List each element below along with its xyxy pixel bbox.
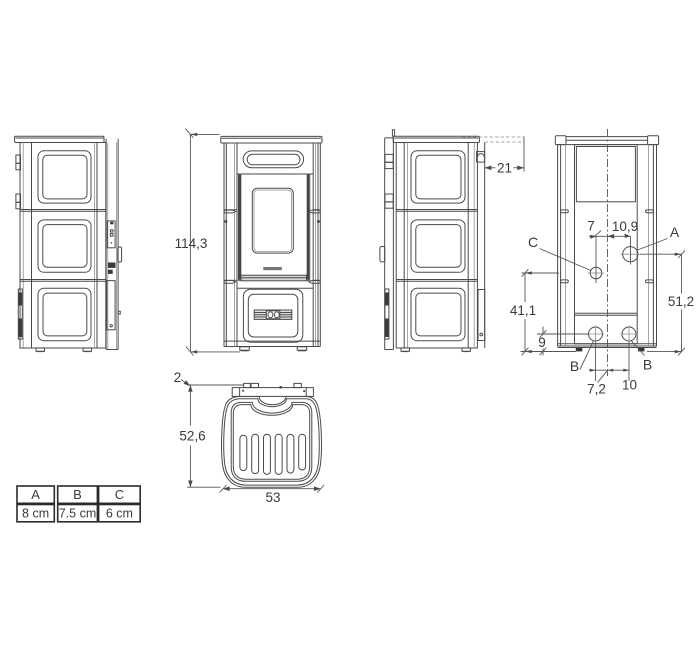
svg-text:10,9: 10,9 xyxy=(612,219,638,234)
svg-text:7: 7 xyxy=(587,219,595,234)
svg-text:A: A xyxy=(670,224,680,240)
svg-text:51,2: 51,2 xyxy=(668,294,694,309)
svg-text:B: B xyxy=(570,358,579,374)
svg-text:21: 21 xyxy=(497,160,512,175)
svg-text:2: 2 xyxy=(174,370,182,385)
svg-text:C: C xyxy=(115,487,124,502)
svg-text:53: 53 xyxy=(265,490,280,505)
svg-text:7.5 cm: 7.5 cm xyxy=(59,507,97,521)
svg-text:B: B xyxy=(643,357,652,373)
svg-text:10: 10 xyxy=(622,378,637,393)
svg-text:B: B xyxy=(73,487,82,502)
svg-text:C: C xyxy=(528,234,538,250)
svg-text:41,1: 41,1 xyxy=(510,303,536,318)
svg-text:114,3: 114,3 xyxy=(175,236,208,251)
svg-text:52,6: 52,6 xyxy=(179,429,205,444)
svg-text:6 cm: 6 cm xyxy=(106,507,133,521)
svg-text:9: 9 xyxy=(538,335,546,350)
svg-text:7,2: 7,2 xyxy=(587,382,606,397)
svg-text:8 cm: 8 cm xyxy=(22,507,49,521)
svg-text:A: A xyxy=(31,487,40,502)
